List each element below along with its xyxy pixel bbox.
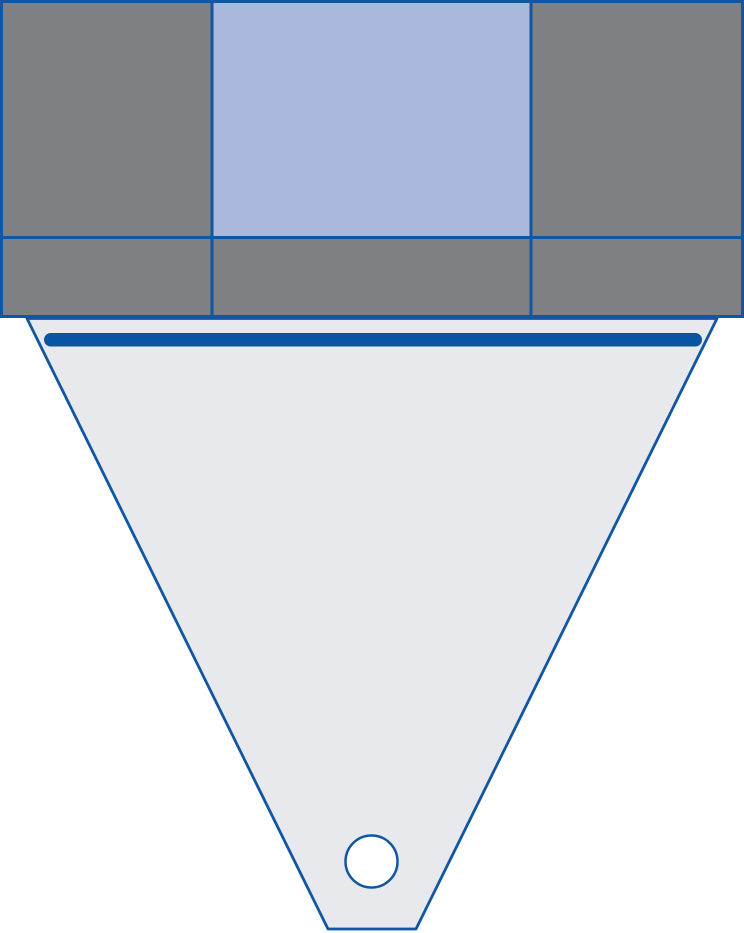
grid-cell-r2c2 (212, 238, 531, 317)
grid-cell-r1c2-highlighted (212, 2, 531, 238)
diagram-page (0, 0, 744, 933)
grid-cell-r1c1 (2, 2, 213, 238)
grid-cell-r2c3 (531, 238, 743, 317)
grid-cell-r1c3 (531, 2, 743, 238)
funnel-diagram-canvas (0, 0, 744, 933)
grid-cell-r2c1 (2, 238, 213, 317)
outlet-circle (346, 836, 398, 888)
inlet-bar (44, 333, 702, 347)
